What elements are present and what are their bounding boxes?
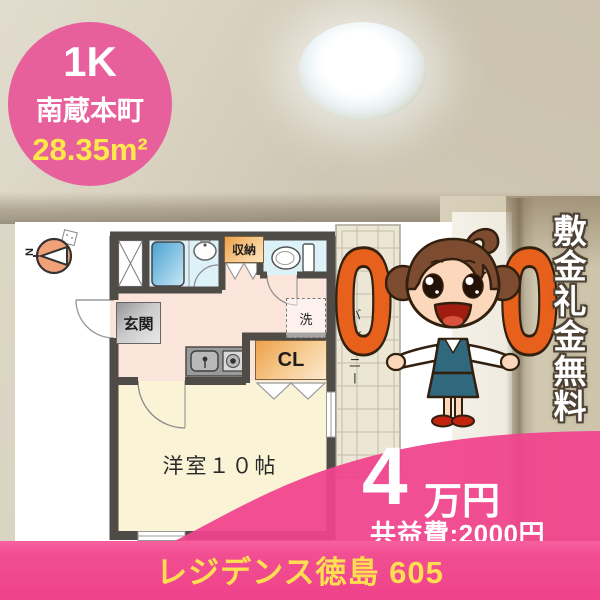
- rent-amount: 4: [362, 436, 408, 518]
- compass-north-label: N: [24, 248, 36, 256]
- floor-area: 28.35m²: [32, 132, 147, 168]
- ceiling-light-photo: [298, 22, 426, 120]
- property-badge: 1K 南蔵本町 28.35m²: [8, 22, 172, 186]
- location-name: 南蔵本町: [36, 89, 144, 128]
- bathtub: [152, 242, 184, 286]
- entrance-label: 玄関: [116, 302, 161, 344]
- closet-label: CL: [255, 340, 327, 380]
- shaft-closet: [119, 241, 143, 287]
- entrance-door-arc: [76, 300, 114, 338]
- building-name: レジデンス徳島 605: [156, 547, 444, 592]
- footer-bar: レジデンス徳島 605: [0, 541, 600, 600]
- layout-type: 1K: [63, 40, 117, 84]
- compass-icon: N: [24, 230, 77, 273]
- kitchen-counter: [186, 347, 246, 376]
- storage-label: 収納: [224, 236, 264, 263]
- mascot-character: [385, 221, 521, 435]
- laundry-label: 洗: [286, 298, 326, 338]
